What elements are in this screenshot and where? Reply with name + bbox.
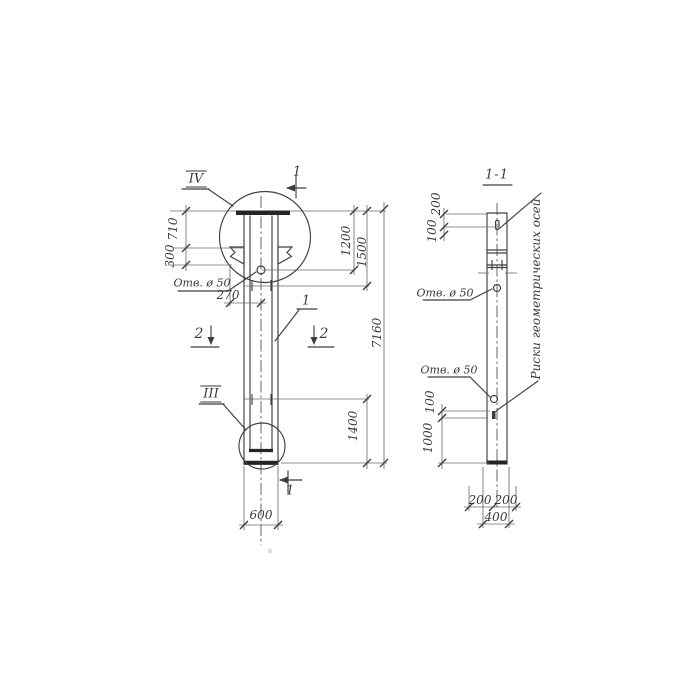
- hole-50-section-lower: [491, 396, 498, 403]
- dim-400: 400: [485, 511, 508, 523]
- dim-270: 270: [217, 289, 240, 301]
- scan-artifact: [268, 549, 273, 554]
- axis-mark-lower-section: [492, 411, 496, 419]
- dim-1000: 1000: [422, 423, 434, 454]
- elevation-view: [168, 176, 388, 554]
- section-column: [478, 213, 517, 463]
- technical-drawing-linework: [0, 0, 700, 700]
- dim-1400: 1400: [347, 411, 359, 442]
- dim-200-right: 200: [495, 494, 518, 506]
- section-1-label-top: 1: [293, 166, 301, 179]
- left-bracket: [230, 247, 244, 264]
- hole-label-section-upper: Отв. ø 50: [417, 288, 474, 299]
- dim-300: 300: [164, 245, 176, 268]
- dim-100-lower: 100: [424, 391, 436, 414]
- hole-label-section-lower: Отв. ø 50: [421, 365, 478, 376]
- dim-7160: 7160: [371, 318, 383, 349]
- dim-710: 710: [167, 218, 179, 241]
- section-2-label-left: 2: [195, 327, 204, 341]
- dim-1500: 1500: [356, 237, 368, 268]
- section-view: [423, 185, 541, 528]
- section-1-label-bottom: 1: [286, 485, 294, 498]
- dim-200-top: 200: [430, 193, 442, 216]
- cap-plate: [236, 211, 290, 216]
- axis-mark-lower: [244, 394, 369, 405]
- axes-note: Риски геометрических осей: [530, 198, 542, 379]
- part-label-1: 1: [302, 295, 310, 308]
- right-bracket: [278, 247, 292, 264]
- axis-mark-upper: [244, 280, 369, 291]
- drawing-canvas: IV III 1 2 2 1 1 Отв. ø 50 710 300 270 1…: [0, 0, 700, 700]
- dim-100-upper: 100: [426, 220, 438, 243]
- detail-label-IV: IV: [186, 171, 207, 188]
- dim-600: 600: [250, 509, 273, 521]
- dim-200-left: 200: [469, 494, 492, 506]
- section-view-title: 1-1: [485, 169, 509, 182]
- hole-label-elevation: Отв. ø 50: [174, 278, 231, 289]
- section-2-label-right: 2: [320, 327, 329, 341]
- detail-label-III: III: [200, 386, 221, 403]
- dim-1200: 1200: [340, 226, 352, 257]
